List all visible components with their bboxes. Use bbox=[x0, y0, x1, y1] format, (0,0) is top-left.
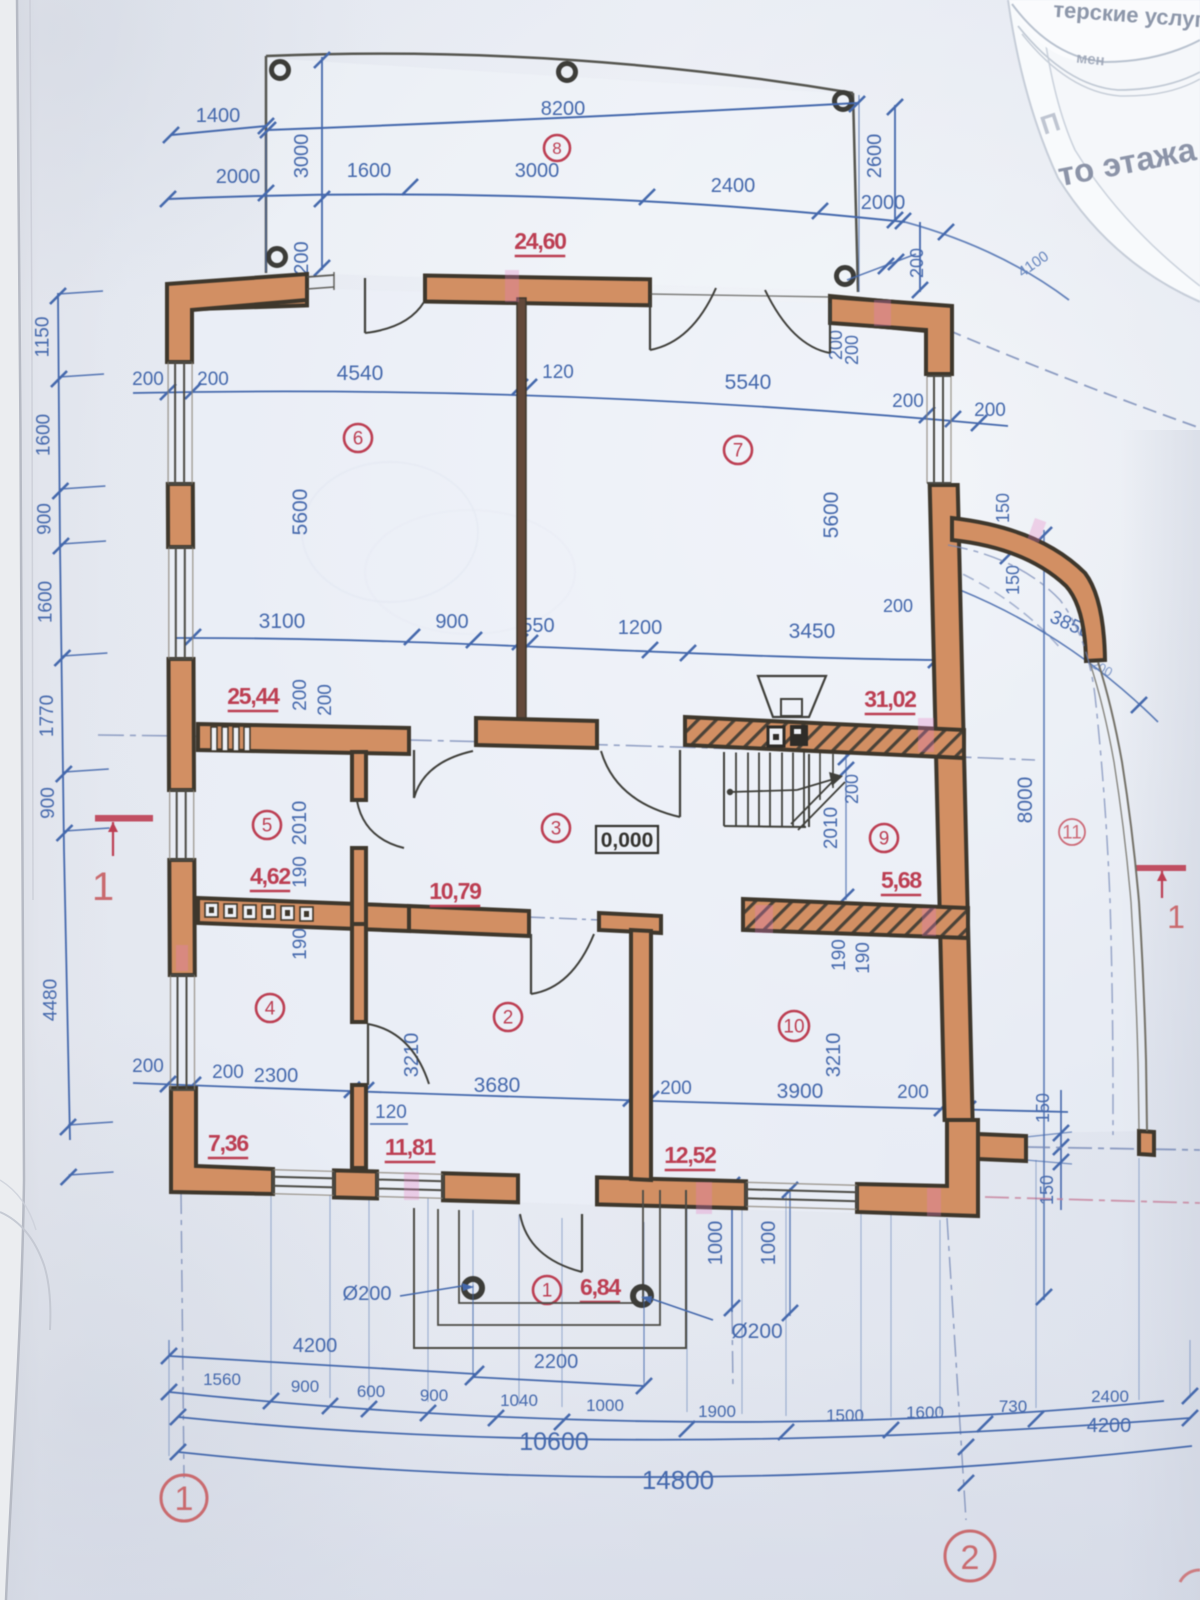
svg-text:6,84: 6,84 bbox=[580, 1274, 621, 1300]
svg-text:5,68: 5,68 bbox=[881, 867, 922, 893]
svg-text:3000: 3000 bbox=[291, 134, 313, 179]
svg-text:5600: 5600 bbox=[820, 492, 843, 539]
svg-text:4480: 4480 bbox=[40, 979, 61, 1021]
svg-text:2: 2 bbox=[961, 1539, 980, 1577]
svg-text:1600: 1600 bbox=[36, 581, 57, 623]
svg-text:2300: 2300 bbox=[254, 1065, 299, 1087]
svg-text:3210: 3210 bbox=[401, 1033, 423, 1078]
svg-text:600: 600 bbox=[357, 1382, 385, 1401]
svg-text:11,81: 11,81 bbox=[385, 1134, 437, 1160]
svg-text:6: 6 bbox=[353, 429, 364, 450]
svg-text:2600: 2600 bbox=[864, 134, 886, 179]
svg-text:9: 9 bbox=[879, 829, 890, 850]
svg-text:7: 7 bbox=[733, 441, 744, 462]
svg-text:200: 200 bbox=[842, 335, 862, 365]
svg-text:1200: 1200 bbox=[618, 617, 663, 639]
svg-text:2400: 2400 bbox=[711, 175, 756, 197]
svg-text:900: 900 bbox=[35, 503, 56, 535]
svg-text:190: 190 bbox=[829, 939, 850, 971]
svg-text:4: 4 bbox=[265, 999, 276, 1020]
svg-text:10600: 10600 bbox=[519, 1428, 589, 1456]
svg-text:12,52: 12,52 bbox=[664, 1142, 716, 1168]
svg-text:120: 120 bbox=[375, 1102, 407, 1123]
svg-text:2200: 2200 bbox=[534, 1351, 579, 1373]
svg-text:31,02: 31,02 bbox=[864, 686, 916, 712]
svg-text:3450: 3450 bbox=[789, 620, 836, 643]
svg-text:200: 200 bbox=[974, 400, 1006, 421]
svg-text:900: 900 bbox=[420, 1386, 448, 1405]
svg-text:1600: 1600 bbox=[347, 160, 392, 182]
svg-text:200: 200 bbox=[197, 369, 229, 390]
svg-text:4200: 4200 bbox=[293, 1335, 338, 1357]
svg-text:3680: 3680 bbox=[474, 1074, 521, 1097]
svg-text:11: 11 bbox=[1062, 823, 1082, 844]
svg-text:120: 120 bbox=[542, 362, 574, 383]
svg-text:7,36: 7,36 bbox=[208, 1130, 248, 1156]
svg-text:0,000: 0,000 bbox=[601, 829, 654, 852]
svg-text:2400: 2400 bbox=[1091, 1387, 1129, 1406]
svg-text:200: 200 bbox=[897, 1082, 929, 1103]
svg-text:150: 150 bbox=[1037, 1175, 1057, 1205]
svg-text:200: 200 bbox=[212, 1062, 244, 1083]
svg-text:1600: 1600 bbox=[34, 414, 55, 456]
svg-text:3900: 3900 bbox=[777, 1080, 824, 1103]
svg-text:190: 190 bbox=[290, 856, 311, 888]
svg-text:4200: 4200 bbox=[1087, 1415, 1132, 1437]
svg-text:200: 200 bbox=[842, 774, 862, 804]
svg-text:200: 200 bbox=[132, 369, 164, 390]
svg-text:150: 150 bbox=[993, 493, 1013, 523]
svg-text:200: 200 bbox=[883, 596, 913, 616]
svg-text:мен: мен bbox=[1075, 50, 1105, 70]
svg-text:24,60: 24,60 bbox=[514, 228, 566, 254]
svg-text:200: 200 bbox=[892, 391, 924, 412]
svg-text:200: 200 bbox=[660, 1078, 692, 1099]
svg-text:1040: 1040 bbox=[500, 1391, 538, 1410]
svg-text:1560: 1560 bbox=[203, 1370, 241, 1389]
svg-text:1500: 1500 bbox=[826, 1406, 864, 1425]
svg-text:4,62: 4,62 bbox=[250, 863, 290, 889]
svg-text:200: 200 bbox=[315, 684, 336, 716]
svg-text:1000: 1000 bbox=[758, 1221, 780, 1266]
svg-text:1000: 1000 bbox=[705, 1221, 727, 1266]
svg-text:2000: 2000 bbox=[861, 192, 906, 214]
svg-text:200: 200 bbox=[290, 679, 311, 711]
svg-text:900: 900 bbox=[38, 787, 59, 819]
svg-text:1770: 1770 bbox=[37, 695, 58, 737]
svg-text:3: 3 bbox=[551, 819, 562, 840]
svg-text:5540: 5540 bbox=[725, 371, 772, 394]
svg-text:1600: 1600 bbox=[906, 1403, 944, 1422]
svg-text:1400: 1400 bbox=[196, 105, 241, 127]
svg-text:3210: 3210 bbox=[823, 1033, 845, 1078]
svg-text:1: 1 bbox=[92, 865, 114, 909]
svg-text:4540: 4540 bbox=[337, 362, 384, 385]
svg-text:1: 1 bbox=[175, 1480, 194, 1518]
svg-text:5600: 5600 bbox=[289, 489, 312, 536]
svg-text:25,44: 25,44 bbox=[227, 683, 280, 709]
svg-text:730: 730 bbox=[999, 1397, 1027, 1416]
svg-text:1: 1 bbox=[542, 1281, 553, 1302]
svg-text:200: 200 bbox=[907, 248, 927, 278]
svg-text:2000: 2000 bbox=[216, 166, 261, 188]
svg-text:190: 190 bbox=[853, 942, 874, 974]
svg-text:150: 150 bbox=[1033, 1093, 1053, 1123]
svg-text:14800: 14800 bbox=[642, 1465, 714, 1495]
svg-text:2010: 2010 bbox=[821, 807, 842, 849]
svg-text:8000: 8000 bbox=[1014, 777, 1037, 824]
svg-text:2: 2 bbox=[503, 1008, 514, 1029]
svg-text:190: 190 bbox=[290, 928, 311, 960]
svg-text:5: 5 bbox=[262, 816, 273, 837]
svg-text:900: 900 bbox=[435, 611, 468, 633]
svg-text:1000: 1000 bbox=[586, 1396, 624, 1415]
svg-text:Ø200: Ø200 bbox=[731, 1320, 782, 1343]
svg-text:10,79: 10,79 bbox=[429, 878, 481, 904]
svg-text:Ø200: Ø200 bbox=[343, 1283, 392, 1305]
svg-text:2010: 2010 bbox=[289, 801, 311, 846]
svg-text:1150: 1150 bbox=[33, 317, 54, 358]
svg-text:900: 900 bbox=[291, 1377, 319, 1396]
svg-text:1: 1 bbox=[1167, 899, 1185, 935]
svg-text:200: 200 bbox=[132, 1056, 164, 1077]
svg-text:10: 10 bbox=[783, 1017, 804, 1038]
svg-text:3100: 3100 bbox=[259, 610, 306, 633]
svg-text:1900: 1900 bbox=[698, 1402, 736, 1421]
svg-text:8: 8 bbox=[552, 139, 561, 158]
svg-text:3000: 3000 bbox=[515, 160, 560, 182]
svg-text:200: 200 bbox=[291, 241, 313, 274]
